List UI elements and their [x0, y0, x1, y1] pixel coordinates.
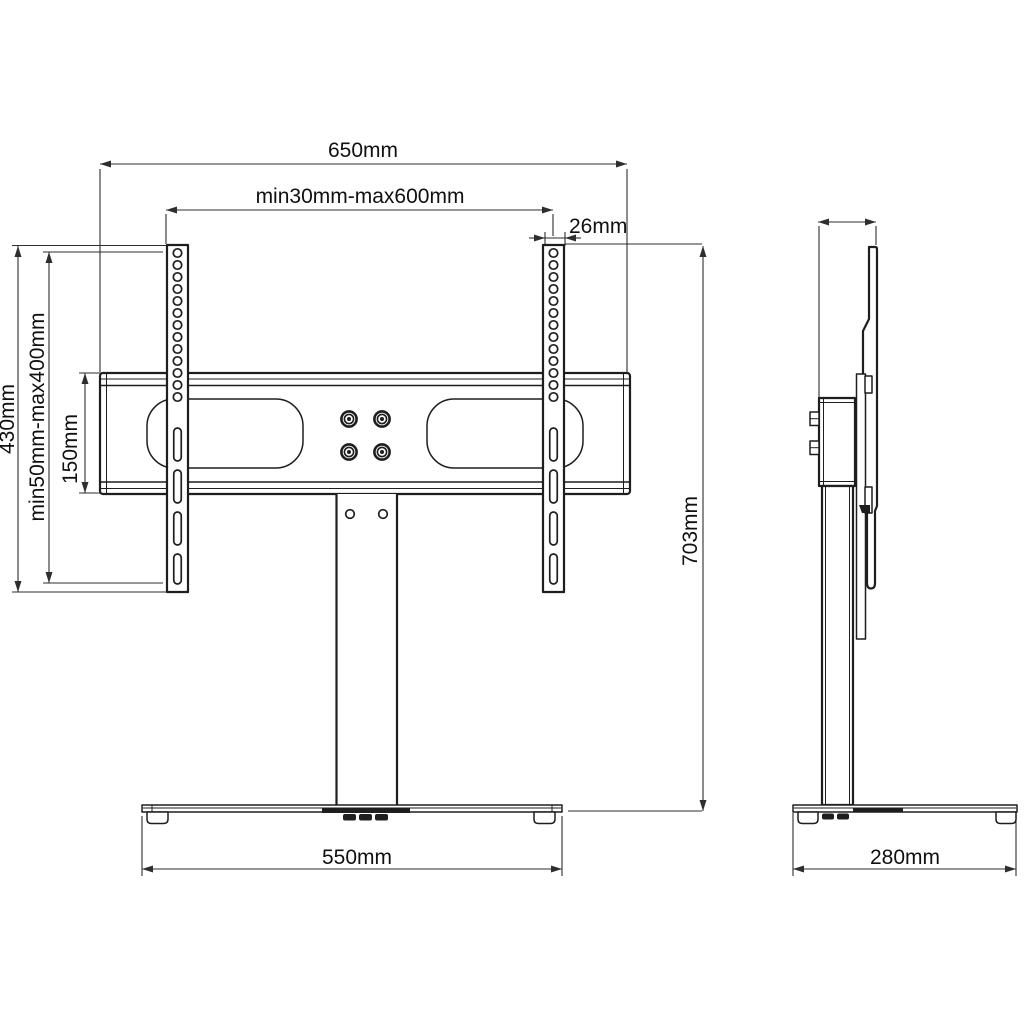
rail-hook-top: [865, 376, 872, 393]
vesa-rail-right: [543, 245, 564, 592]
technical-drawing-page: 650mm min30mm-max600mm 26mm 430mm min50m…: [0, 0, 1024, 1024]
stand-base-profile: [793, 805, 1017, 824]
dimension-bracket-height: 150mm: [59, 373, 103, 493]
column-mount-plate: [322, 809, 410, 814]
dim-label-550mm: 550mm: [322, 846, 392, 869]
knob-profile: [810, 412, 819, 455]
base-foot-back: [996, 812, 1016, 824]
dim-label-430mm: 430mm: [0, 384, 19, 454]
dim-label-min30-max600: min30mm-max600mm: [256, 185, 465, 208]
mount-screw: [837, 814, 849, 820]
side-view: [793, 247, 1017, 824]
dimension-base-depth: 280mm: [793, 813, 1016, 876]
base-foot-front: [798, 812, 818, 824]
column-hole: [346, 510, 355, 519]
mount-screw: [822, 814, 834, 820]
base-foot-right: [534, 812, 555, 824]
tv-stand-diagram: 650mm min30mm-max600mm 26mm 430mm min50m…: [0, 0, 1024, 1024]
stand-base: [142, 805, 562, 824]
stand-column-profile: [822, 486, 853, 805]
dimension-base-width: 550mm: [142, 816, 562, 876]
dim-label-min50-max400: min50mm-max400mm: [26, 313, 49, 522]
base-foot-left: [147, 812, 168, 824]
dim-label-280mm: 280mm: [870, 846, 940, 869]
mount-screw: [359, 814, 372, 821]
stand-column: [337, 494, 398, 805]
dimension-rail-spacing: min30mm-max600mm: [166, 185, 553, 244]
dim-label-150mm: 150mm: [59, 414, 82, 484]
dim-label-703mm: 703mm: [679, 496, 702, 566]
dimension-rail-width: 26mm: [529, 215, 702, 246]
mount-screw: [375, 814, 388, 821]
bracket-bar-profile: [810, 398, 855, 486]
dim-label-26mm: 26mm: [569, 215, 627, 238]
vesa-rail-left: [167, 245, 188, 592]
dim-label-650mm: 650mm: [328, 139, 398, 162]
mount-screw: [343, 814, 356, 821]
column-hole: [379, 510, 388, 519]
dimension-overall-height: 703mm: [568, 246, 703, 811]
front-view: [100, 245, 630, 824]
column-mount-plate-profile: [853, 809, 903, 813]
